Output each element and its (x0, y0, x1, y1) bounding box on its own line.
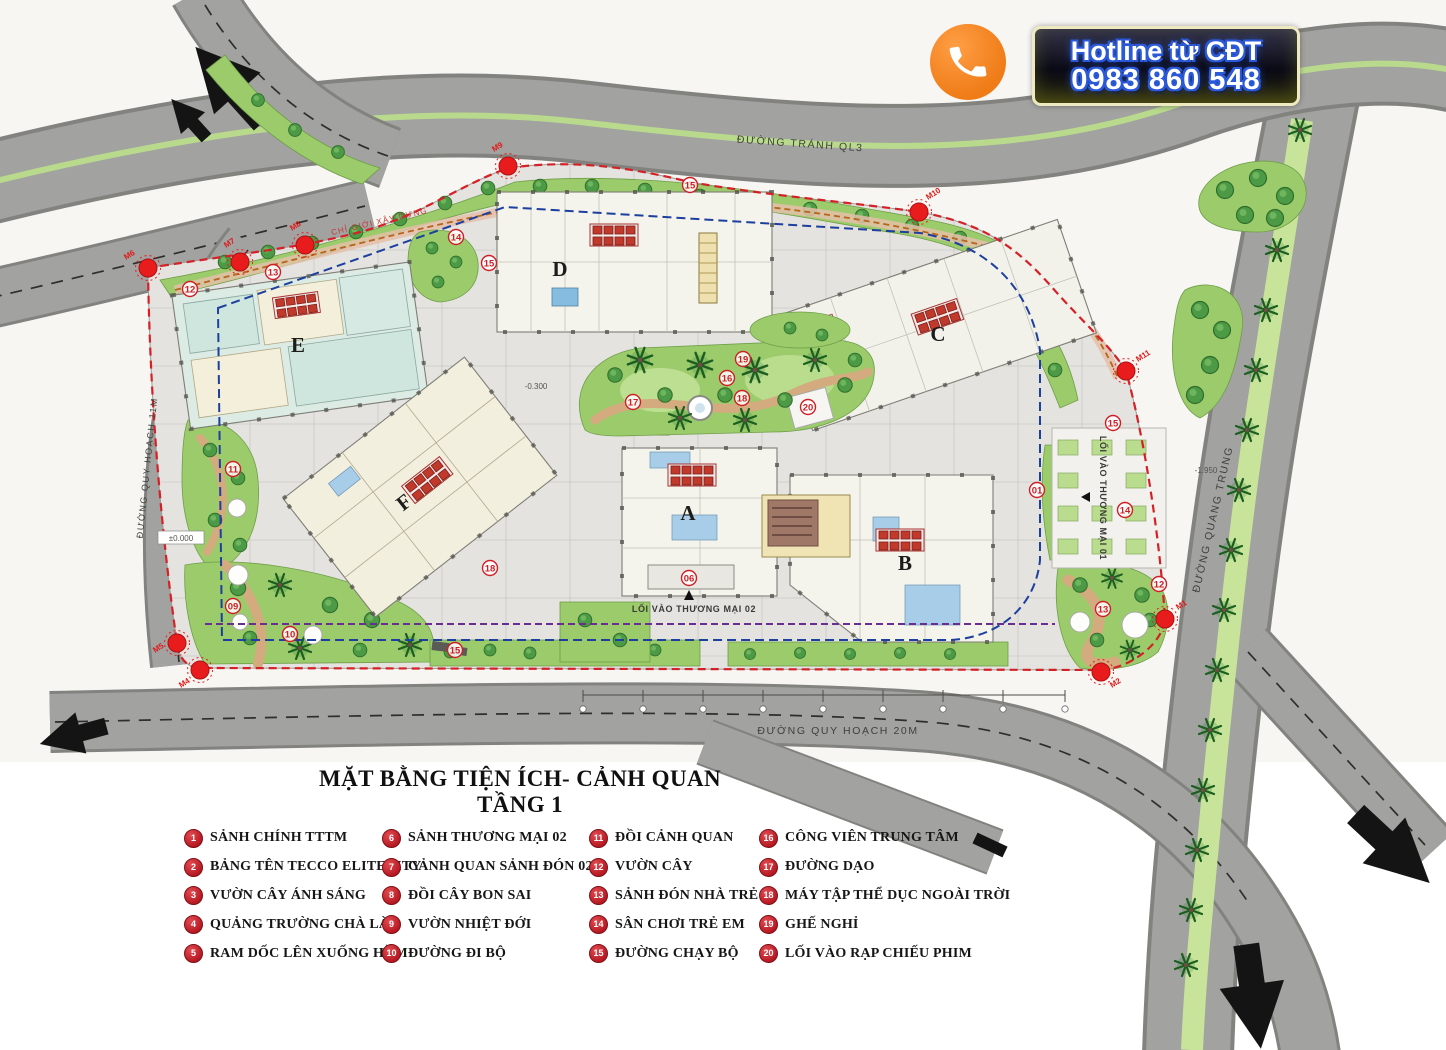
legend-number-badge: 13 (589, 886, 608, 905)
legend-number-badge: 1 (184, 829, 203, 848)
building-d-label: D (552, 257, 567, 281)
legend-item-label: QUẢNG TRƯỜNG CHÀ LÀ (210, 917, 389, 933)
legend-item-label: SẢNH CHÍNH TTTM (210, 830, 347, 846)
legend-number-badge: 20 (759, 944, 778, 963)
svg-text:16: 16 (722, 374, 733, 385)
legend-item: 6SẢNH THƯƠNG MẠI 02 (382, 824, 592, 853)
legend-item: 16CÔNG VIÊN TRUNG TÂM (759, 824, 1019, 853)
legend-number-badge: 2 (184, 858, 203, 877)
legend-item: 3VƯỜN CÂY ÁNH SÁNG (184, 882, 384, 911)
legend-number-badge: 16 (759, 829, 778, 848)
legend-column-2: 6SẢNH THƯƠNG MẠI 02 7CẢNH QUAN SẢNH ĐÓN … (382, 824, 592, 968)
legend-item-label: SÂN CHƠI TRẺ EM (615, 917, 745, 933)
legend-item: 14SÂN CHƠI TRẺ EM (589, 910, 764, 939)
legend-number-badge: 6 (382, 829, 401, 848)
phone-icon (930, 24, 1006, 100)
legend-item-label: GHẾ NGHỈ (785, 917, 859, 933)
legend-number-badge: 17 (759, 858, 778, 877)
svg-text:15: 15 (484, 259, 495, 270)
legend-item: 11ĐỒI CẢNH QUAN (589, 824, 764, 853)
legend-number-badge: 4 (184, 915, 203, 934)
legend-item: 15ĐƯỜNG CHẠY BỘ (589, 939, 764, 968)
legend-item-label: ĐƯỜNG DẠO (785, 859, 875, 875)
legend-item: 4QUẢNG TRƯỜNG CHÀ LÀ (184, 910, 384, 939)
poi-marker: 11 (226, 462, 241, 477)
svg-text:06: 06 (684, 574, 695, 585)
legend-number-badge: 15 (589, 944, 608, 963)
hotline-number: 0983 860 548 (1071, 65, 1260, 95)
building-b-label: B (898, 551, 912, 575)
svg-text:20: 20 (803, 403, 814, 414)
poi-marker: 09 (226, 599, 241, 614)
legend-item-label: VƯỜN CÂY (615, 859, 693, 875)
poi-marker: 15 (482, 256, 497, 271)
svg-text:17: 17 (628, 398, 639, 409)
legend-item-label: SẢNH ĐÓN NHÀ TRẺ (615, 888, 758, 904)
legend-number-badge: 3 (184, 886, 203, 905)
poi-marker: 13 (266, 265, 281, 280)
poi-marker: 06 (682, 571, 697, 586)
svg-text:19: 19 (738, 355, 749, 366)
legend-item: 19GHẾ NGHỈ (759, 910, 1019, 939)
hotline-title: Hotline từ CĐT (1071, 37, 1262, 65)
building-e-label: E (291, 333, 305, 357)
legend-item: 18MÁY TẬP THỂ DỤC NGOÀI TRỜI (759, 882, 1019, 911)
svg-text:18: 18 (737, 394, 748, 405)
legend-item: 7CẢNH QUAN SẢNH ĐÓN 02 (382, 853, 592, 882)
poi-marker: 12 (1152, 577, 1167, 592)
poi-marker: 18 (735, 391, 750, 406)
svg-text:09: 09 (228, 602, 239, 613)
legend-item-label: VƯỜN CÂY ÁNH SÁNG (210, 888, 366, 904)
svg-text:15: 15 (1108, 419, 1119, 430)
entrance-01-label: LỐI VÀO THƯƠNG MẠI 01 (1098, 436, 1109, 560)
poi-marker: 14 (449, 230, 464, 245)
poi-marker: 15 (448, 643, 463, 658)
svg-text:15: 15 (450, 646, 461, 657)
legend-item: 8ĐỒI CÂY BON SAI (382, 882, 592, 911)
legend-number-badge: 8 (382, 886, 401, 905)
svg-text:14: 14 (451, 233, 462, 244)
legend-item-label: ĐỒI CẢNH QUAN (615, 830, 734, 846)
legend-item: 10ĐƯỜNG ĐI BỘ (382, 939, 592, 968)
legend-item: 17ĐƯỜNG DẠO (759, 853, 1019, 882)
hotline-banner[interactable]: Hotline từ CĐT 0983 860 548 (926, 16, 1306, 108)
legend-item-label: CẢNH QUAN SẢNH ĐÓN 02 (408, 859, 593, 875)
poi-marker: 16 (720, 371, 735, 386)
legend-number-badge: 18 (759, 886, 778, 905)
legend-column-1: 1SẢNH CHÍNH TTTM 2BẢNG TÊN TECCO ELITECI… (184, 824, 384, 968)
entrance-01-plaza: LỐI VÀO THƯƠNG MẠI 01 (1052, 428, 1166, 568)
poi-marker: 19 (736, 352, 751, 367)
poi-marker: 20 (801, 400, 816, 415)
level-marker: -0.300 (525, 382, 548, 391)
legend-item-label: LỐI VÀO RẠP CHIẾU PHIM (785, 946, 972, 962)
legend-number-badge: 7 (382, 858, 401, 877)
svg-text:12: 12 (1154, 580, 1165, 591)
svg-text:01: 01 (1032, 486, 1043, 497)
svg-text:15: 15 (685, 181, 696, 192)
poi-marker: 15 (683, 178, 698, 193)
svg-text:11: 11 (228, 465, 239, 476)
legend-number-badge: 9 (382, 915, 401, 934)
legend-item: 2BẢNG TÊN TECCO ELITECITY (184, 853, 384, 882)
entrance-02-label: LỐI VÀO THƯƠNG MẠI 02 (632, 603, 756, 614)
legend-number-badge: 12 (589, 858, 608, 877)
legend-item: 1SẢNH CHÍNH TTTM (184, 824, 384, 853)
legend-item-label: ĐƯỜNG ĐI BỘ (408, 946, 506, 962)
legend-item: 5RAM DỐC LÊN XUỐNG HẦM (184, 939, 384, 968)
legend-item-label: VƯỜN NHIỆT ĐỚI (408, 917, 531, 933)
legend-item-label: ĐƯỜNG CHẠY BỘ (615, 946, 739, 962)
legend-item-label: MÁY TẬP THỂ DỤC NGOÀI TRỜI (785, 888, 1010, 904)
poi-marker: 18 (483, 561, 498, 576)
building-c-label: C (930, 322, 945, 346)
site-plan-page: { "hotline": { "title": "Hotline từ CĐT"… (0, 0, 1446, 1050)
road-label-20m: ĐƯỜNG QUY HOẠCH 20M (757, 724, 918, 737)
legend-number-badge: 10 (382, 944, 401, 963)
poi-marker: 15 (1106, 416, 1121, 431)
poi-marker: 12 (183, 282, 198, 297)
poi-marker: 01 (1030, 483, 1045, 498)
legend-item: 12VƯỜN CÂY (589, 853, 764, 882)
legend-number-badge: 11 (589, 829, 608, 848)
poi-marker: 14 (1118, 503, 1133, 518)
legend-item-label: ĐỒI CÂY BON SAI (408, 888, 531, 904)
level-marker: ±0.000 (158, 531, 204, 544)
legend-item-label: CÔNG VIÊN TRUNG TÂM (785, 830, 959, 846)
legend-item-label: SẢNH THƯƠNG MẠI 02 (408, 830, 567, 846)
legend-item: 13SẢNH ĐÓN NHÀ TRẺ (589, 882, 764, 911)
svg-text:12: 12 (185, 285, 196, 296)
svg-text:18: 18 (485, 564, 496, 575)
level-marker: -1.950 (1195, 466, 1218, 475)
hotline-box: Hotline từ CĐT 0983 860 548 (1032, 26, 1300, 106)
svg-text:13: 13 (268, 268, 279, 279)
svg-text:10: 10 (285, 630, 296, 641)
building-a-label: A (680, 501, 696, 525)
poi-marker: 10 (283, 627, 298, 642)
building-d (497, 192, 772, 332)
legend-column-4: 16CÔNG VIÊN TRUNG TÂM 17ĐƯỜNG DẠO 18MÁY … (759, 824, 1019, 968)
svg-text:13: 13 (1098, 605, 1109, 616)
poi-marker: 13 (1096, 602, 1111, 617)
svg-text:±0.000: ±0.000 (169, 534, 194, 543)
legend-item: 20LỐI VÀO RẠP CHIẾU PHIM (759, 939, 1019, 968)
legend-number-badge: 14 (589, 915, 608, 934)
page-title: MẶT BẰNG TIỆN ÍCH- CẢNH QUAN TẦNG 1 (290, 766, 750, 818)
poi-marker: 17 (626, 395, 641, 410)
legend-item: 9VƯỜN NHIỆT ĐỚI (382, 910, 592, 939)
legend-number-badge: 19 (759, 915, 778, 934)
legend-item-label: RAM DỐC LÊN XUỐNG HẦM (210, 946, 408, 962)
svg-text:14: 14 (1120, 506, 1131, 517)
legend-number-badge: 5 (184, 944, 203, 963)
legend-column-3: 11ĐỒI CẢNH QUAN 12VƯỜN CÂY 13SẢNH ĐÓN NH… (589, 824, 764, 968)
